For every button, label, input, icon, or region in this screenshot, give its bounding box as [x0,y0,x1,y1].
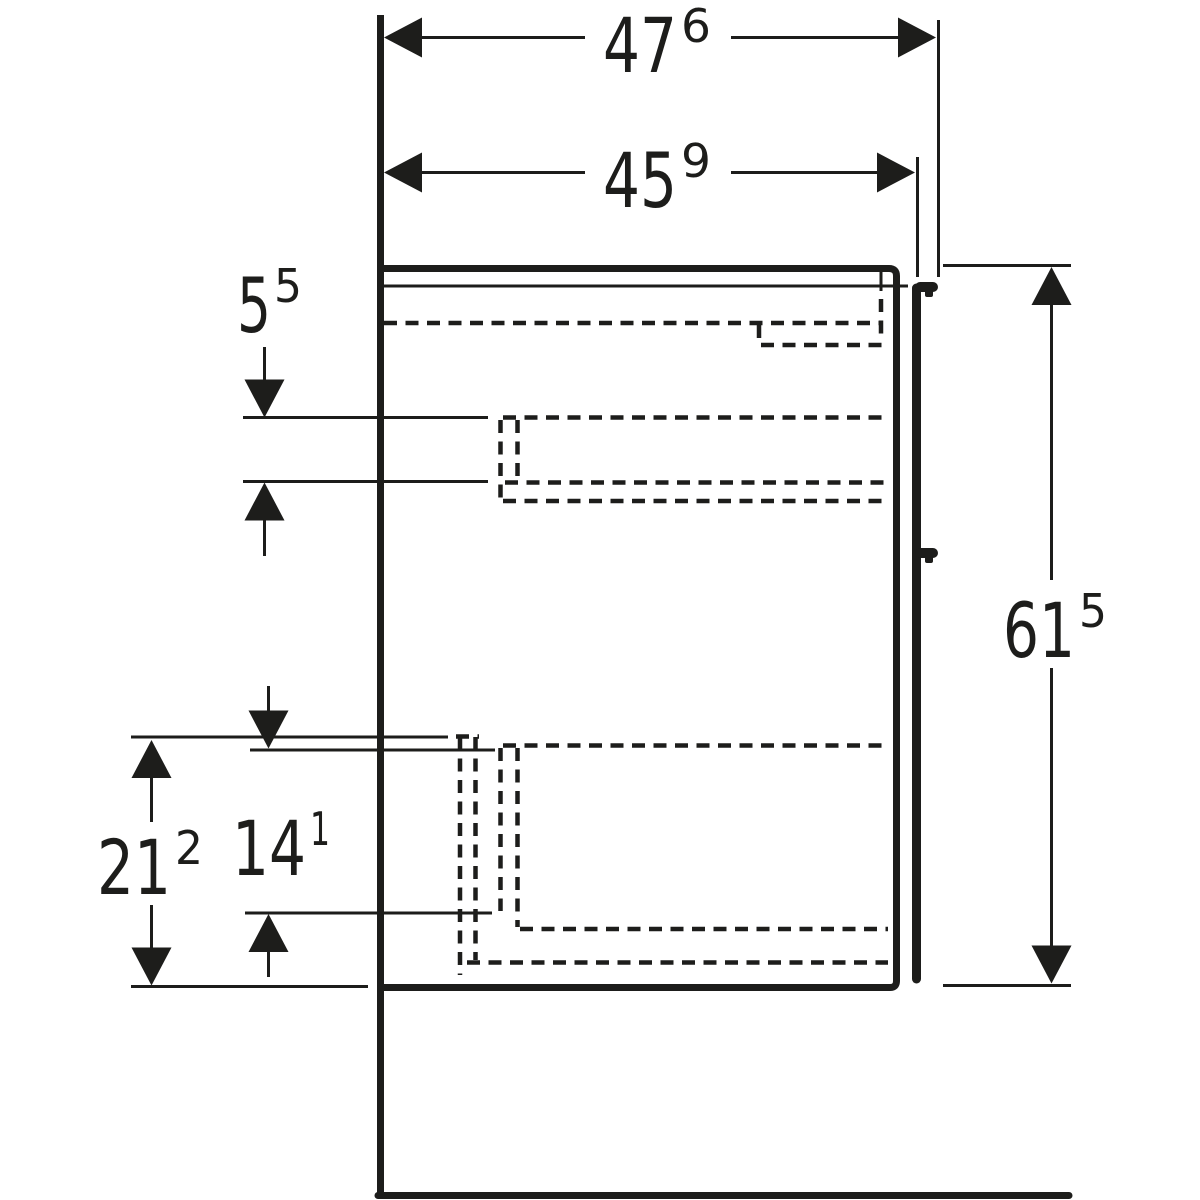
technical-drawing-canvas: 476 459 55 615 212 141 [0,0,1200,1200]
dimension-label-inner-width: 459 [603,134,711,225]
dimension-label-lower-left-outer: 212 [97,821,203,912]
dimension-label-upper-left: 55 [237,259,302,350]
dimension-upper-left: 55 [237,259,302,556]
hidden-lower-drawer-outline [456,737,888,976]
dimension-label-top-width: 476 [603,0,711,90]
dimension-lower-left-outer: 212 [97,740,203,986]
vanity-side-view-drawing: 476 459 55 615 212 141 [0,0,1200,1200]
knob-top [920,287,933,297]
extension-lines-left [131,418,495,987]
dimension-height-right: 615 [943,266,1107,986]
cabinet-carcass-outline [384,269,908,988]
dimension-inner-width: 459 [384,134,918,277]
dimension-label-height-right: 615 [1003,584,1107,675]
knob-middle [920,553,933,563]
dimension-label-lower-left-inner: 141 [232,802,330,893]
hidden-top-shelf-outline [384,299,882,345]
dimension-lower-left-inner: 141 [232,686,330,977]
hidden-upper-drawer-outline [501,418,889,502]
